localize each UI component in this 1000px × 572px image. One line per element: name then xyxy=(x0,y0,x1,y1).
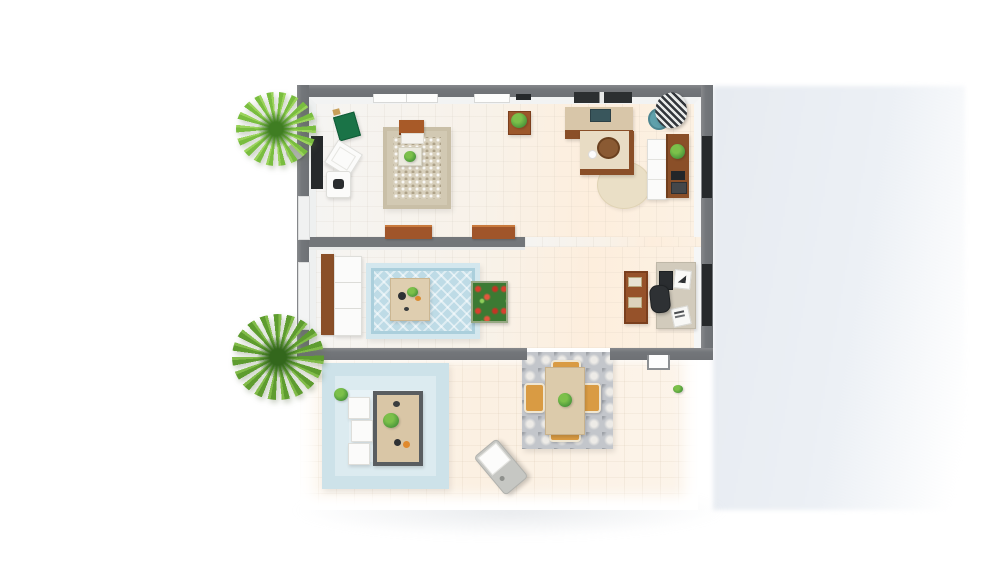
patio-floor xyxy=(300,358,698,510)
white-cabinet xyxy=(647,139,667,200)
floor-connector xyxy=(525,237,701,247)
bookshelf xyxy=(624,271,648,324)
sofa-cushions xyxy=(334,256,362,336)
desk-notebook xyxy=(670,305,692,327)
cube-seat xyxy=(348,443,370,465)
console-plant xyxy=(670,144,685,159)
lounge-chair-knob xyxy=(499,475,506,482)
table-dish-orange xyxy=(403,441,410,448)
coffee-table-plant xyxy=(404,151,416,162)
lounge-table xyxy=(390,278,430,321)
cabinet-seam xyxy=(648,179,666,180)
divider-bench-west xyxy=(385,225,432,239)
side-table xyxy=(326,171,351,198)
kitchen-island xyxy=(580,131,634,175)
paper-graphic xyxy=(678,275,687,284)
wall-console xyxy=(666,134,689,198)
lounge-chair xyxy=(473,438,528,496)
table-plant xyxy=(383,413,399,428)
stove-top xyxy=(590,109,611,122)
shelf-books xyxy=(628,277,642,287)
window-west-living xyxy=(298,196,310,240)
dining-table xyxy=(545,367,585,435)
coffee-table xyxy=(398,147,422,166)
window-east-lounge xyxy=(702,264,712,326)
desk-chair xyxy=(649,284,672,314)
plant-stand-plant xyxy=(511,113,527,128)
island-plate xyxy=(588,150,597,159)
kitchen-window xyxy=(574,92,632,103)
wall-south-west-segment xyxy=(297,348,527,360)
ground-shadow-right xyxy=(713,86,965,510)
patio-table xyxy=(373,391,423,466)
wall-tv xyxy=(311,136,323,189)
desk-paper xyxy=(673,269,692,290)
potted-plant-small xyxy=(334,388,348,401)
vent-north-small xyxy=(516,94,531,100)
cube-seat xyxy=(351,420,373,442)
lounge-chair-cushion xyxy=(478,442,511,475)
table-fruit xyxy=(415,296,421,301)
table-dish-dark xyxy=(394,439,401,446)
plant-stand xyxy=(508,111,531,135)
flower-box xyxy=(471,281,508,323)
sofa-back xyxy=(321,254,334,335)
floorplan-render xyxy=(0,0,1000,572)
divider-bench-east xyxy=(472,225,515,239)
window-sill-north-2 xyxy=(406,94,438,103)
window-sill-north-3 xyxy=(474,94,510,103)
table-small-item xyxy=(404,307,409,311)
sofa-seam xyxy=(335,282,361,283)
door-threshold xyxy=(647,355,670,370)
sprig-plant xyxy=(673,385,683,393)
island-stool xyxy=(597,137,620,159)
sofa-seam xyxy=(335,308,361,309)
dining-chair-west xyxy=(524,383,545,413)
notebook-lines xyxy=(675,314,685,318)
rug-bench-cushion xyxy=(401,133,424,144)
armchair-cushion xyxy=(331,146,356,170)
cabinet-seam xyxy=(648,159,666,160)
cat-figurine xyxy=(333,179,344,189)
console-book-stack xyxy=(671,171,685,180)
table-bowl xyxy=(393,401,400,407)
window-east-living xyxy=(702,136,712,198)
shelf-books xyxy=(628,297,642,308)
window-sill-north-1 xyxy=(373,94,409,103)
palm-tree-south xyxy=(232,314,324,400)
palm-tree-north xyxy=(236,92,316,166)
centerpiece-plant xyxy=(558,393,572,407)
cube-seat xyxy=(348,397,370,419)
table-black-bowl xyxy=(398,292,406,300)
console-speaker xyxy=(671,182,687,194)
